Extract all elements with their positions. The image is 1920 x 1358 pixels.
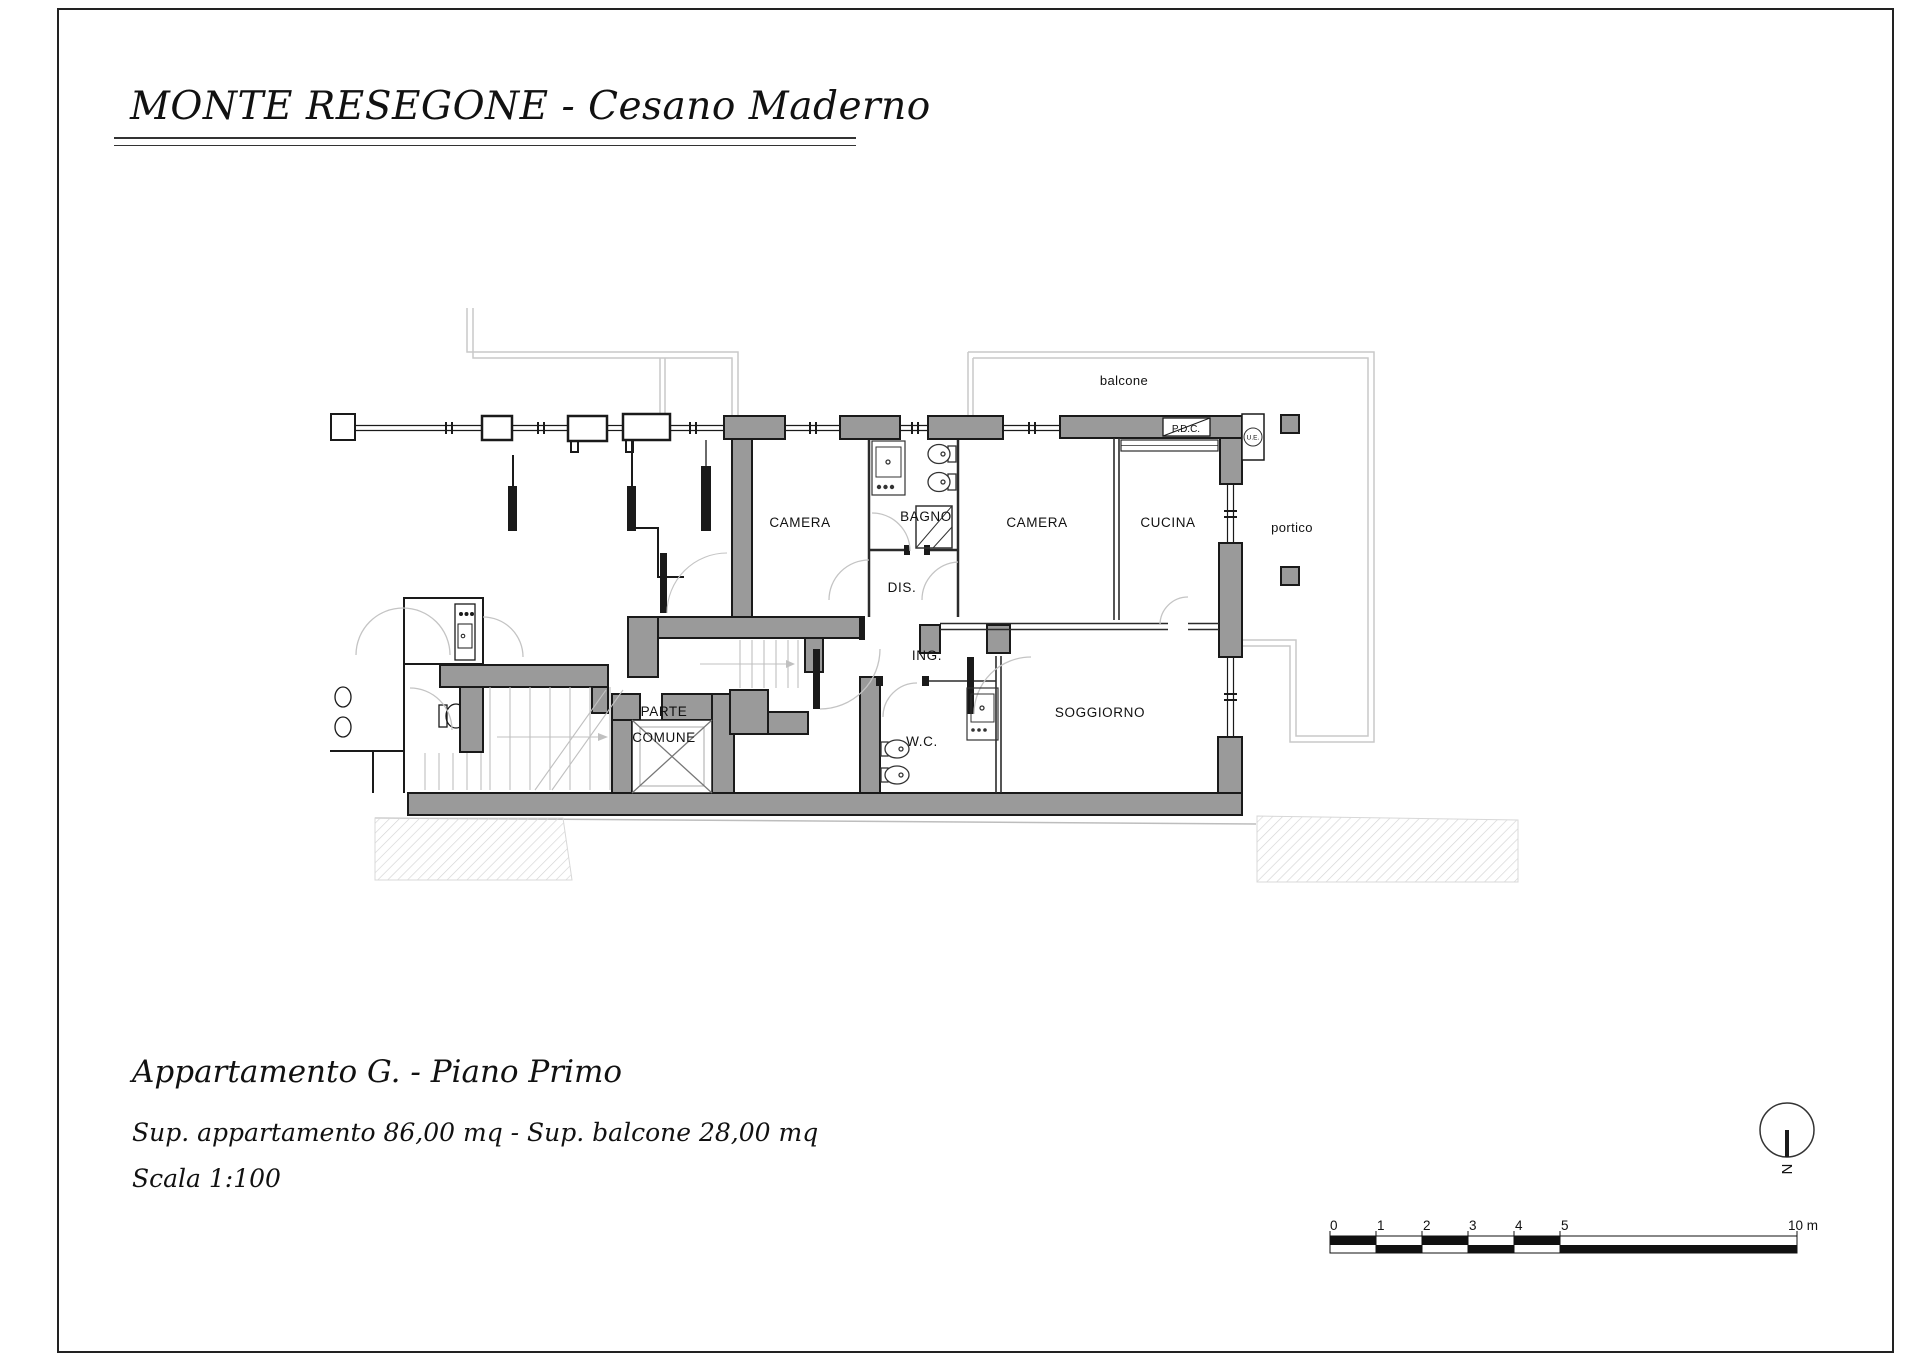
pdc-label: P.D.C. (1172, 424, 1200, 435)
apartment-walls (408, 415, 1299, 815)
room-label-parte-comune-2: COMUNE (632, 730, 696, 745)
room-label-soggiorno: SOGGIORNO (1055, 705, 1145, 720)
windows (785, 422, 1237, 737)
room-label-ing: ING. (912, 648, 942, 663)
ground-hatch (375, 816, 1518, 882)
scale-tick-4: 4 (1515, 1218, 1523, 1233)
outdoor-label-balcone: balcone (1100, 373, 1148, 388)
scale-tick-0: 0 (1330, 1218, 1338, 1233)
room-label-camera-left: CAMERA (769, 515, 830, 530)
scale-bar: 0 1 2 3 4 5 10 m (1330, 1218, 1818, 1253)
room-label-camera-right: CAMERA (1006, 515, 1067, 530)
scale-tick-1: 1 (1377, 1218, 1385, 1233)
room-label-cucina: CUCINA (1140, 515, 1195, 530)
floor-plan: P.D.C. U.E. CAMERA BAGNO CAMERA CUCINA D… (0, 0, 1920, 1358)
scale-tick-3: 3 (1469, 1218, 1477, 1233)
scale-tick-5: 5 (1561, 1218, 1569, 1233)
sanitary-fixtures (872, 441, 998, 784)
scale-tick-2: 2 (1423, 1218, 1431, 1233)
pdc-box: P.D.C. (1163, 418, 1210, 436)
room-label-parte-comune-1: PARTE (641, 704, 688, 719)
ue-niche: U.E. (1242, 414, 1264, 460)
north-label: N (1778, 1164, 1795, 1175)
ue-label: U.E. (1247, 435, 1260, 442)
north-indicator: N (1760, 1103, 1814, 1174)
scale-tick-10m: 10 m (1788, 1218, 1818, 1233)
outdoor-label-portico: portico (1271, 520, 1313, 535)
room-label-wc: W.C. (906, 734, 938, 749)
room-label-dis: DIS. (888, 580, 917, 595)
room-label-bagno: BAGNO (900, 509, 952, 524)
